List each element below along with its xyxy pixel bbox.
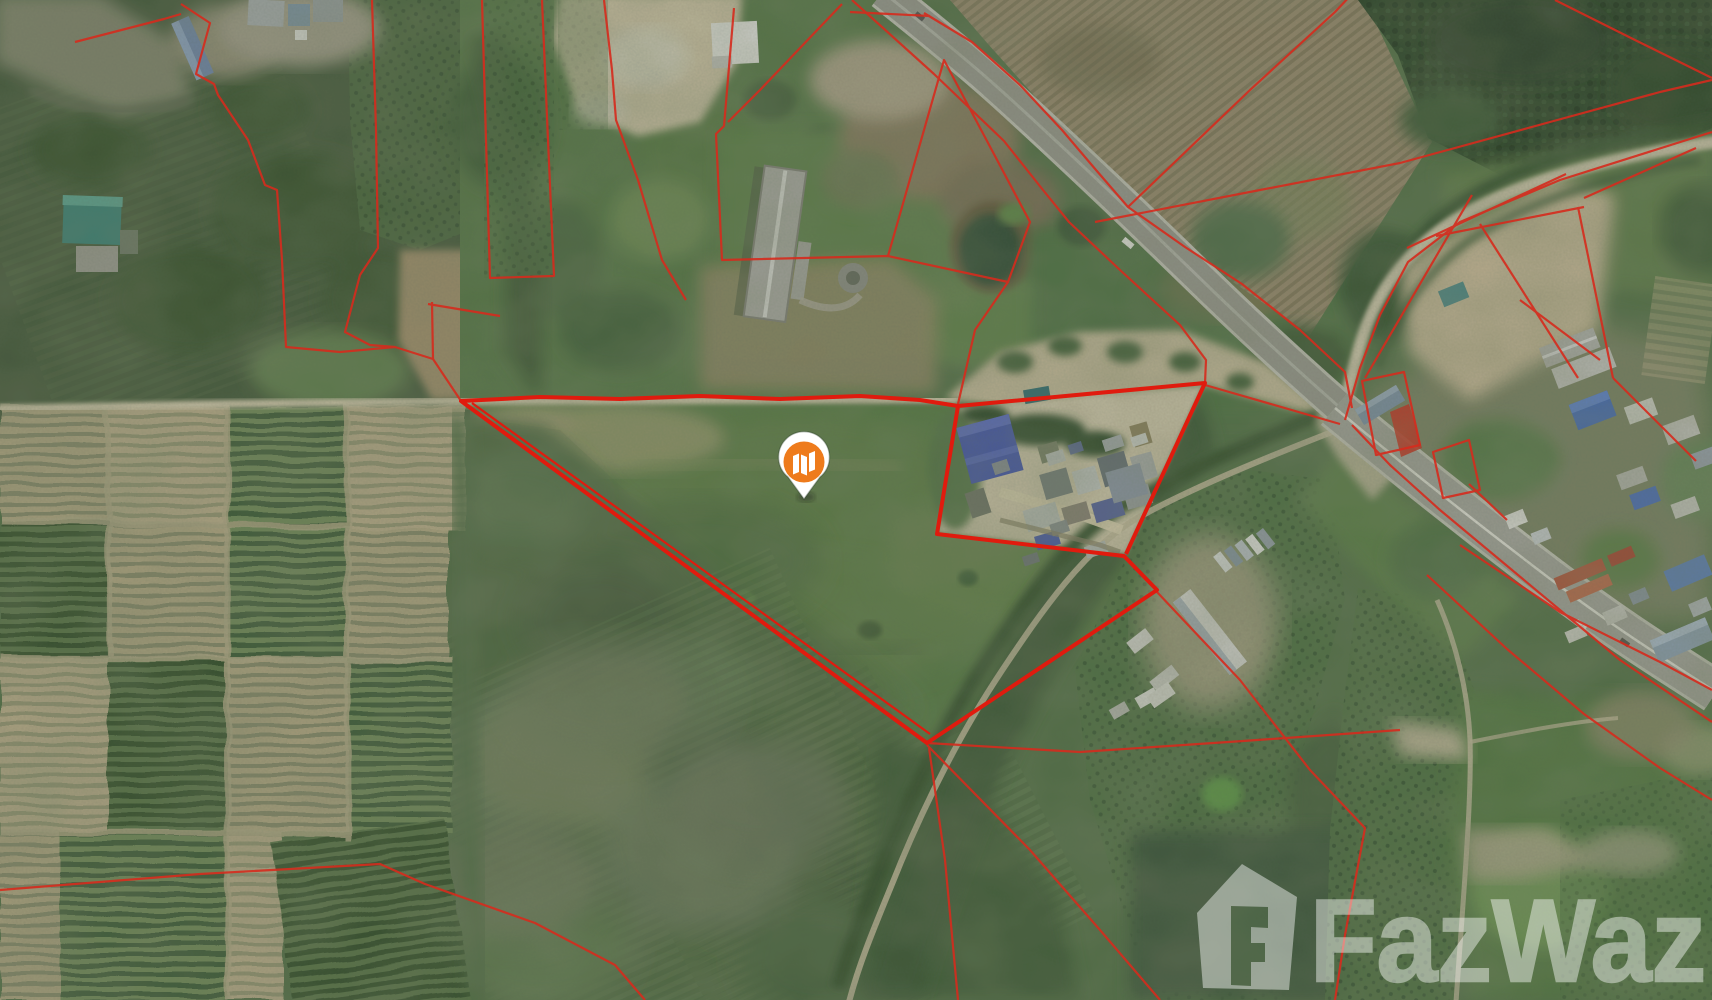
svg-text:FazWaz: FazWaz: [1310, 875, 1706, 1000]
